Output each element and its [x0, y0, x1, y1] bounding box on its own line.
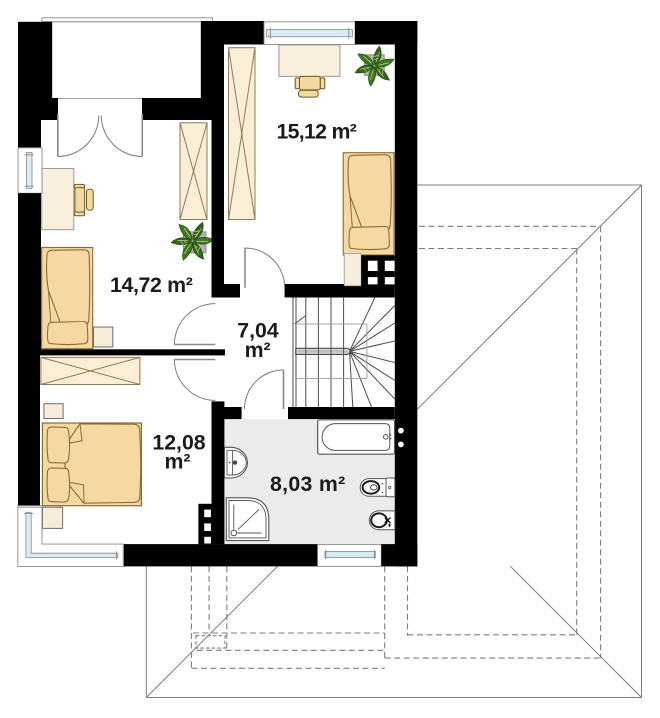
svg-text:m²: m²: [164, 450, 190, 474]
svg-text:15,12 m²: 15,12 m²: [277, 120, 357, 144]
svg-text:8,03 m²: 8,03 m²: [270, 472, 346, 496]
svg-text:m²: m²: [245, 338, 271, 362]
svg-text:14,72 m²: 14,72 m²: [110, 273, 193, 297]
